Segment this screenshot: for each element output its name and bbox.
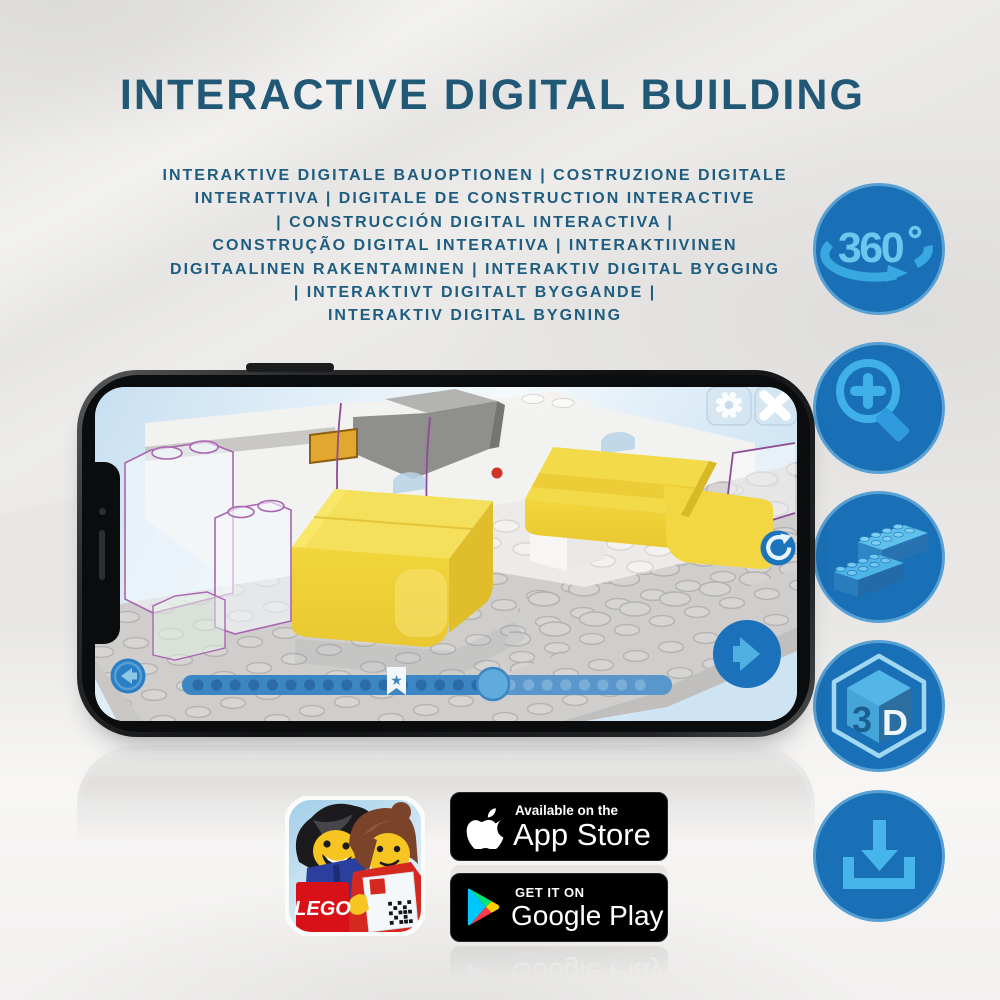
- svg-text:360: 360: [838, 224, 904, 272]
- svg-text:3: 3: [852, 699, 872, 740]
- svg-text:LEGO: LEGO: [294, 898, 351, 920]
- svg-text:★: ★: [390, 672, 403, 688]
- svg-text:D: D: [882, 702, 908, 743]
